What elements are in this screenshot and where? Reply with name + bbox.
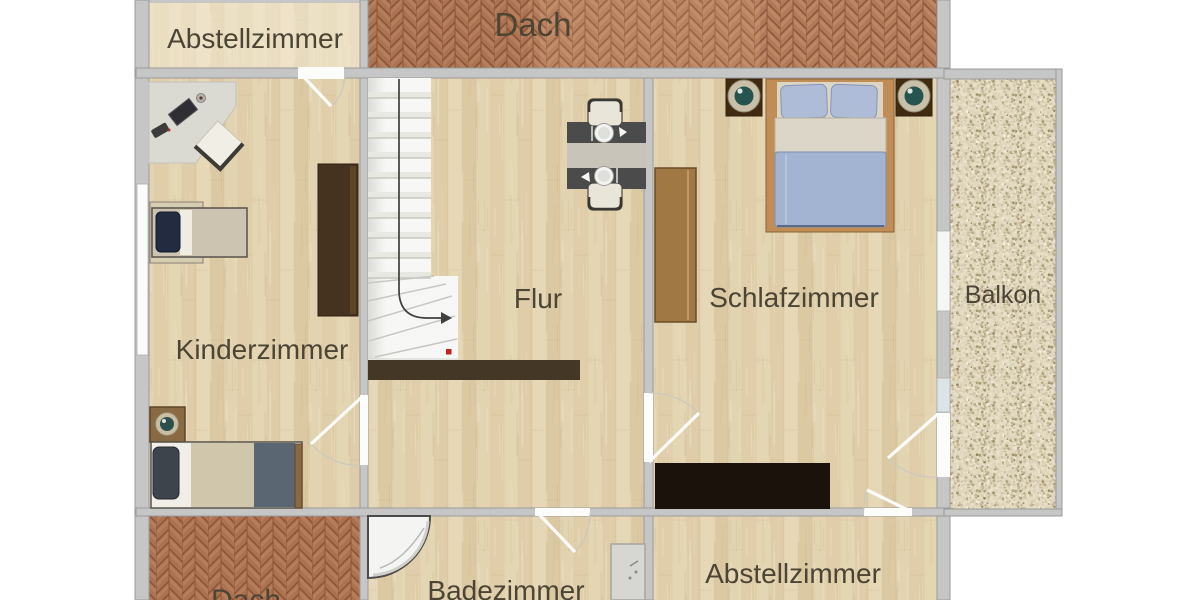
svg-text:Dach: Dach	[211, 584, 281, 600]
svg-text:Kinderzimmer: Kinderzimmer	[176, 334, 349, 365]
svg-text:Badezimmer: Badezimmer	[427, 575, 584, 600]
svg-text:Flur: Flur	[514, 283, 562, 314]
svg-text:Balkon: Balkon	[965, 281, 1041, 309]
svg-text:Abstellzimmer: Abstellzimmer	[167, 23, 343, 54]
svg-text:Abstellzimmer: Abstellzimmer	[705, 558, 881, 589]
svg-text:Schlafzimmer: Schlafzimmer	[709, 282, 879, 313]
svg-text:Dach: Dach	[494, 6, 571, 43]
